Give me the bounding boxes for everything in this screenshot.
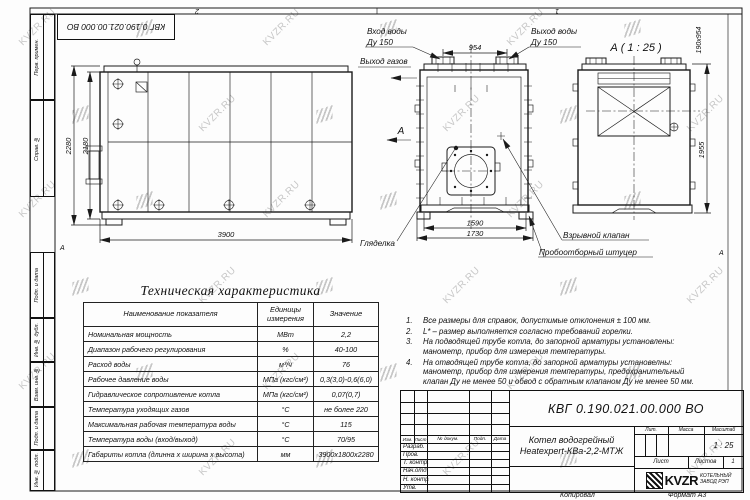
note-number: 3. bbox=[404, 337, 423, 356]
label-water-out-dn: Ду 150 bbox=[530, 38, 557, 47]
product-name-line1: Котел водогрейный bbox=[529, 435, 615, 446]
table-row: Температура уходящих газов°Сне более 220 bbox=[84, 402, 379, 417]
drawing-sheet: KVZR.RUKVZR.RUKVZR.RUKVZR.RUKVZR.RUKVZR.… bbox=[0, 0, 750, 500]
table-header: Значение bbox=[314, 303, 379, 327]
sidebar-cell-vzam-inv: Взам. инв. № bbox=[30, 362, 55, 407]
table-cell: 0,07(0,7) bbox=[314, 387, 379, 402]
tb-sheets-label: Листов bbox=[688, 456, 723, 468]
table-cell: МПа (кгс/см²) bbox=[258, 372, 314, 387]
tb-col-docnum: № докум. bbox=[427, 435, 469, 443]
tb-row-nkontr: Н. контр. bbox=[401, 475, 429, 484]
tech-table: Наименование показателя Единицы измерени… bbox=[83, 302, 379, 462]
table-cell: Номинальная мощность bbox=[84, 327, 258, 342]
table-cell: 70/95 bbox=[314, 432, 379, 447]
tb-col-izm: Изм. bbox=[401, 435, 414, 443]
sidebar-cell-inv-dubl: Инв. № дубл. bbox=[30, 318, 55, 362]
note-text: На подводящей трубе котла, до запорной а… bbox=[423, 337, 702, 356]
view-direction-letter: А bbox=[397, 126, 405, 137]
top-doc-box: КВГ 0.190.021.00.000 ВО bbox=[57, 14, 175, 40]
tb-scale-label: Масштаб bbox=[704, 426, 743, 434]
footer-format: Формат А3 bbox=[668, 492, 706, 499]
sidebar-cell-perv-primen: Перв. примен. bbox=[30, 14, 55, 100]
dim-3900: 3900 bbox=[218, 230, 236, 239]
tb-company-cell: KVZR КОТЕЛЬНЫЙ ЗАВОД РЭП bbox=[634, 468, 743, 492]
tb-row-razrab: Разраб. bbox=[401, 443, 429, 451]
dim-1955: 1955 bbox=[697, 141, 706, 159]
table-row: Расход водым³/ч76 bbox=[84, 357, 379, 372]
table-header: Наименование показателя bbox=[84, 303, 258, 327]
note-number: 1. bbox=[404, 316, 423, 326]
table-cell: % bbox=[258, 342, 314, 357]
table-cell: Расход воды bbox=[84, 357, 258, 372]
table-row: Температура воды (вход/выход)°С70/95 bbox=[84, 432, 379, 447]
title-block: Изм. Лист № докум. Подп. Дата Разраб. Пр… bbox=[400, 390, 744, 493]
table-cell: Температура уходящих газов bbox=[84, 402, 258, 417]
tb-lit-label: Лит. bbox=[634, 426, 668, 434]
zone-row-left: А bbox=[59, 245, 65, 252]
label-gas-out: Выход газов bbox=[360, 57, 408, 66]
kvzr-logo-text: KVZR bbox=[665, 473, 698, 488]
table-row: Рабочее давление водыМПа (кгс/см²)0,3(3,… bbox=[84, 372, 379, 387]
product-name-line2: Heatexpert-КВа-2,2-МТЖ bbox=[520, 446, 623, 457]
table-cell: Максимальная рабочая температура воды bbox=[84, 417, 258, 432]
note-number: 4. bbox=[404, 358, 423, 387]
company-name-line2: ЗАВОД РЭП bbox=[700, 480, 731, 486]
tb-row-utv: Утв. bbox=[401, 484, 429, 492]
tb-mass-label: Масса bbox=[668, 426, 704, 434]
dim-2280: 2280 bbox=[64, 137, 73, 156]
sidebar-label: Подп. и дата bbox=[34, 411, 40, 445]
tb-sheets-value: 1 bbox=[723, 456, 743, 468]
tb-row-tkontr: Т. контр. bbox=[401, 459, 429, 467]
table-row: Гидравлическое сопротивление котлаМПа (к… bbox=[84, 387, 379, 402]
zone-col-1: 1 bbox=[555, 7, 559, 14]
sidebar-label: Справ. № bbox=[34, 136, 40, 161]
table-cell: МВт bbox=[258, 327, 314, 342]
note-number: 2. bbox=[404, 327, 423, 337]
table-cell: Температура воды (вход/выход) bbox=[84, 432, 258, 447]
tb-row-nachotd: Нач.отд. bbox=[401, 467, 429, 475]
top-doc-number: КВГ 0.190.021.00.000 ВО bbox=[67, 22, 165, 32]
label-water-out: Выход воды bbox=[531, 27, 577, 36]
tb-doc-number: КВГ 0.190.021.00.000 ВО bbox=[509, 391, 743, 426]
sidebar-cell-inv-podl: Инв. № подл. bbox=[30, 450, 55, 491]
sidebar-label: Взам. инв. № bbox=[34, 367, 40, 401]
side-dims: 2280 2180 3900 bbox=[64, 66, 352, 243]
note-text: Все размеры для справок, допустимые откл… bbox=[423, 316, 702, 326]
sidebar-label: Перв. примен. bbox=[34, 39, 40, 76]
tb-col-data: Дата bbox=[491, 435, 509, 443]
label-water-in-dn: Ду 150 bbox=[366, 38, 393, 47]
label-water-in: Вход воды bbox=[367, 27, 407, 36]
front-callouts: Вход воды Ду 150 Выход воды Ду 150 Выход… bbox=[358, 27, 653, 257]
table-header-row: Наименование показателя Единицы измерени… bbox=[84, 303, 379, 327]
note-item: 4.На отводящей трубе котла, до запорной … bbox=[404, 358, 702, 387]
note-item: 3.На подводящей трубе котла, до запорной… bbox=[404, 337, 702, 356]
table-cell: Габариты котла (длинна х ширина х высота… bbox=[84, 447, 258, 462]
table-header: Единицы измерения bbox=[258, 303, 314, 327]
manhole-circles bbox=[112, 78, 316, 211]
detail-view: А ( 1 : 25 ) bbox=[573, 26, 711, 220]
table-cell: 3900х1800х2280 bbox=[314, 447, 379, 462]
table-cell: °С bbox=[258, 402, 314, 417]
zone-col-2: 2 bbox=[195, 7, 200, 14]
table-row: Максимальная рабочая температура воды°С1… bbox=[84, 417, 379, 432]
sidebar-cell-podp-data-1: Подп. и дата bbox=[30, 252, 55, 318]
detail-title: А ( 1 : 25 ) bbox=[609, 42, 662, 54]
label-sight-glass: Гляделка bbox=[360, 239, 395, 248]
tb-sheet-label: Лист bbox=[634, 456, 688, 468]
table-cell: Гидравлическое сопротивление котла bbox=[84, 387, 258, 402]
side-view: 2280 2180 3900 bbox=[64, 59, 352, 243]
table-cell: 76 bbox=[314, 357, 379, 372]
table-cell: не более 220 bbox=[314, 402, 379, 417]
note-item: 2.L* – размер выполняется согласно требо… bbox=[404, 327, 702, 337]
zone-row-right: А bbox=[718, 250, 724, 257]
sidebar-label: Инв. № дубл. bbox=[34, 323, 40, 357]
table-cell: Рабочее давление воды bbox=[84, 372, 258, 387]
table-cell: МПа (кгс/см²) bbox=[258, 387, 314, 402]
table-cell: 0,3(3,0)-0,6(6,0) bbox=[314, 372, 379, 387]
table-cell: 40-100 bbox=[314, 342, 379, 357]
table-row: Диапазон рабочего регулирования%40-100 bbox=[84, 342, 379, 357]
notes-block: 1.Все размеры для справок, допустимые от… bbox=[404, 316, 702, 388]
tb-col-list: Лист bbox=[414, 435, 427, 443]
kvzr-logo: KVZR КОТЕЛЬНЫЙ ЗАВОД РЭП bbox=[646, 472, 732, 489]
dim-1590: 1590 bbox=[467, 219, 485, 228]
kvzr-logo-icon bbox=[646, 472, 663, 489]
dim-954: 954 bbox=[469, 43, 482, 52]
sidebar-label: Инв. № подл. bbox=[34, 453, 40, 487]
tb-col-podp: Подп. bbox=[469, 435, 491, 443]
table-cell: м³/ч bbox=[258, 357, 314, 372]
sidebar-cell-sprav-no: Справ. № bbox=[30, 100, 55, 197]
note-text: На отводящей трубе котла, до запорной ар… bbox=[423, 358, 702, 387]
table-row: Номинальная мощностьМВт2,2 bbox=[84, 327, 379, 342]
note-item: 1.Все размеры для справок, допустимые от… bbox=[404, 316, 702, 326]
table-cell: °С bbox=[258, 432, 314, 447]
tech-table-title: Техническая характеристика bbox=[83, 283, 378, 299]
dim-1730: 1730 bbox=[467, 229, 485, 238]
tb-product-name: Котел водогрейный Heatexpert-КВа-2,2-МТЖ bbox=[509, 426, 634, 466]
sidebar-label: Подп. и дата bbox=[34, 268, 40, 302]
table-row: Габариты котла (длинна х ширина х высота… bbox=[84, 447, 379, 462]
table-cell: Диапазон рабочего регулирования bbox=[84, 342, 258, 357]
dim-190x954: 190х954 bbox=[696, 26, 703, 53]
dim-2180: 2180 bbox=[81, 137, 90, 156]
tb-scale-value: 1 : 25 bbox=[704, 434, 743, 456]
note-text: L* – размер выполняется согласно требова… bbox=[423, 327, 702, 337]
footer-copy: Копировал bbox=[560, 492, 595, 499]
front-view: 954 1590 1730 Вход воды Ду 150 Выход вод… bbox=[358, 27, 653, 257]
table-cell: мм bbox=[258, 447, 314, 462]
label-sampler: Пробоотборный штуцер bbox=[539, 248, 637, 257]
table-cell: 115 bbox=[314, 417, 379, 432]
label-burst-valve: Взрывной клапан bbox=[563, 231, 630, 240]
sidebar-cell-podp-data-2: Подп. и дата bbox=[30, 407, 55, 450]
table-cell: 2,2 bbox=[314, 327, 379, 342]
table-cell: °С bbox=[258, 417, 314, 432]
tb-row-prov: Пров. bbox=[401, 451, 429, 459]
